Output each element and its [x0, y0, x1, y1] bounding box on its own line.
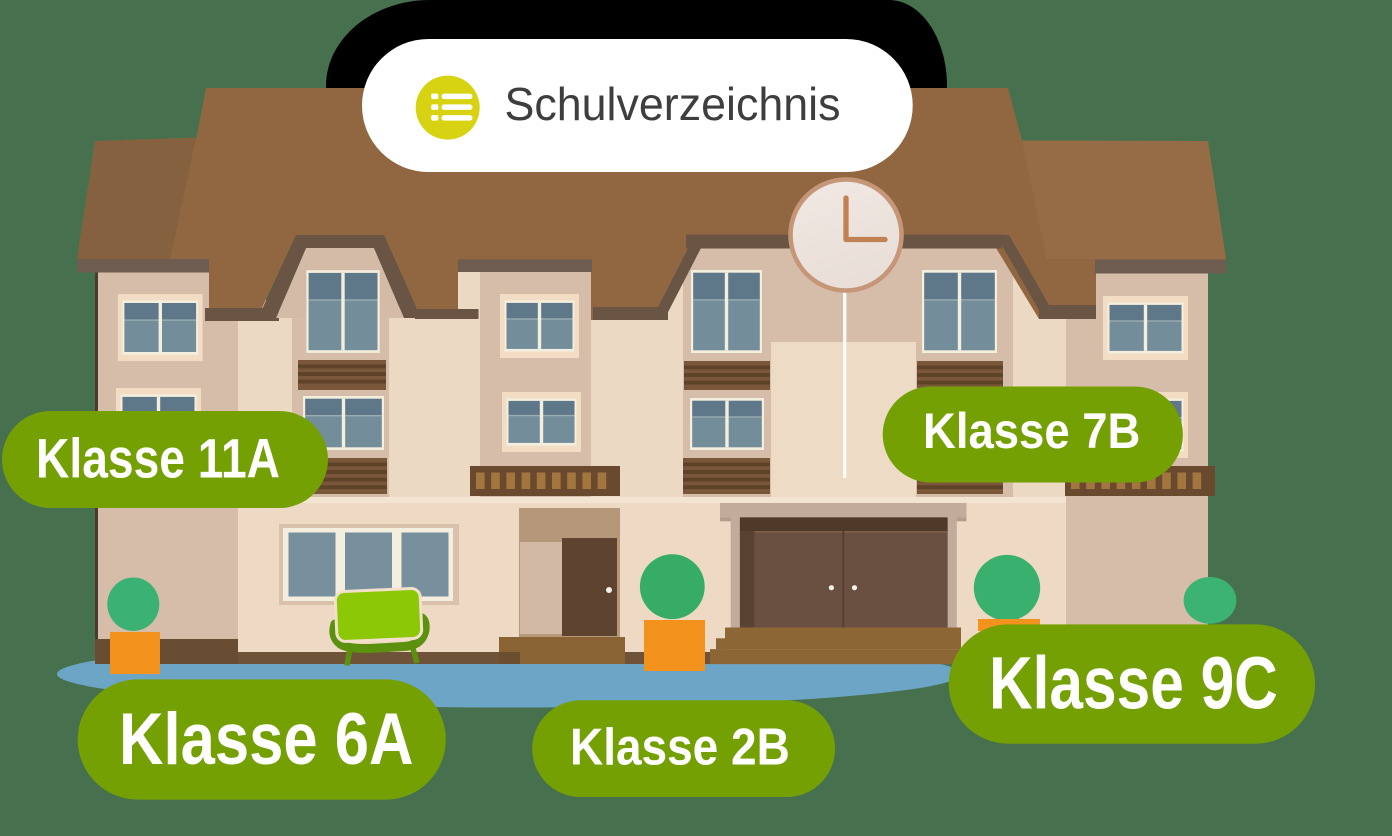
svg-text:Klasse 2B: Klasse 2B: [570, 718, 790, 776]
svg-text:Klasse 11A: Klasse 11A: [36, 427, 280, 490]
svg-text:Klasse 6A: Klasse 6A: [119, 697, 414, 780]
svg-text:Klasse 7B: Klasse 7B: [923, 402, 1140, 459]
svg-text:Klasse 9C: Klasse 9C: [989, 642, 1278, 725]
svg-text:Schulverzeichnis: Schulverzeichnis: [505, 78, 841, 130]
